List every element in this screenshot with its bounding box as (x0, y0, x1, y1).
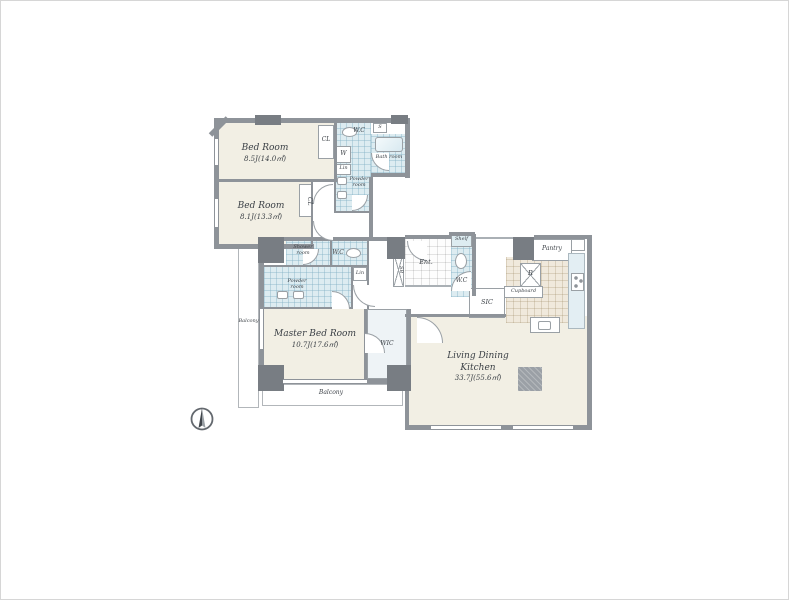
bathtub (375, 137, 403, 152)
cl1-label: CL (318, 137, 334, 144)
balcony-left-label: Balcony (236, 319, 261, 325)
window-bedroom2-left (214, 199, 219, 227)
wc-entry-label: W.C (451, 278, 472, 285)
compass-icon (189, 405, 215, 433)
entry-step-line (405, 285, 451, 287)
fridge-label: R (524, 270, 537, 277)
balcony-left (238, 248, 259, 408)
powder-mid-label: Powder room (282, 279, 312, 290)
powder-top-label: Powder room (348, 177, 370, 188)
bedroom2-label: Bed Room 8.1J(13.3㎡) (223, 201, 299, 222)
wic-label: WIC (373, 341, 401, 348)
pillar-top-wall-2 (391, 115, 408, 124)
wall-hall-top (369, 237, 389, 241)
window-master-west (259, 309, 264, 349)
ldk-label: Living Dining Kitchen 33.7J(55.6㎡) (431, 351, 525, 383)
powder-top-sink-1 (337, 177, 347, 185)
pillar-top-wall (255, 115, 281, 125)
linen-top-label: Lin (336, 166, 351, 172)
wall-bath-right (405, 118, 410, 178)
door-bedroom1 (313, 184, 333, 204)
wall-entry-top (405, 235, 451, 239)
toilet-mid-icon (346, 248, 361, 258)
wall-wic-east (407, 309, 411, 367)
pillar-shower-nw (258, 237, 284, 263)
toilet-entry-icon (455, 253, 467, 269)
wall-bedroom-divider (216, 179, 337, 182)
kitchen-counter-right (568, 253, 585, 329)
pillar-master-sw (258, 365, 284, 391)
washer-label: W (337, 151, 350, 158)
wall-wetcore-west (334, 179, 336, 213)
powder-mid-sink-2 (293, 291, 304, 299)
master-bedroom-label: Master Bed Room 10.7J(17.6㎡) (267, 329, 363, 350)
bedroom1-name: Bed Room (227, 143, 303, 155)
cupboard-label: Cupboard (505, 289, 542, 295)
kitchen-sink-icon (538, 321, 551, 330)
floor-plan-canvas: Bed Room 8.5J(14.0㎡) Bed Room 8.1J(13.3㎡… (0, 0, 789, 600)
linen-mid-label: Lin (353, 271, 367, 277)
ldk-name: Living Dining Kitchen (431, 351, 525, 374)
wall-powder-top-bottom (334, 211, 371, 213)
wall-pantry-top (534, 235, 574, 239)
pantry-label: Pantry (535, 246, 569, 253)
wall-living-west (405, 389, 409, 425)
window-bedroom1-left (214, 139, 219, 165)
bedroom1-label: Bed Room 8.5J(14.0㎡) (227, 143, 303, 164)
stove-icon (571, 273, 584, 291)
cl2-label: CL (300, 191, 312, 211)
sb-label: SB (395, 261, 403, 279)
bedroom1-size: 8.5J(14.0㎡) (227, 155, 303, 164)
shower-room-label: Shower room (289, 245, 317, 256)
shelf-label: Shelf (451, 237, 472, 243)
wall-niche-top (476, 237, 513, 239)
wc-top-label: W.C (349, 128, 369, 135)
window-living-bottom-1 (431, 425, 501, 430)
wall-right (587, 239, 592, 425)
s-closet-label: S (373, 125, 387, 131)
pillar-kitchen (513, 237, 534, 260)
bedroom2-name: Bed Room (223, 201, 299, 213)
balcony-bottom-label: Balcony (301, 390, 361, 397)
master-bedroom-name: Master Bed Room (267, 329, 363, 341)
wall-wc-entry-east (472, 234, 476, 296)
window-master-bottom (283, 379, 367, 384)
wall-top (214, 118, 410, 123)
wc-mid-label: W.C (329, 250, 347, 257)
bedroom2-size: 8.1J(13.3㎡) (223, 213, 299, 222)
bath-room-label: Bath room (374, 155, 404, 161)
pillar-entry (387, 237, 405, 259)
pillar-master-se (387, 365, 411, 391)
entry-label: Ent. (413, 259, 439, 266)
powder-mid-sink-1 (277, 291, 288, 299)
meter-box (571, 239, 585, 251)
ldk-size: 33.7J(55.6㎡) (431, 374, 525, 383)
door-master (353, 285, 375, 307)
window-living-bottom-2 (513, 425, 573, 430)
master-bedroom-size: 10.7J(17.6㎡) (267, 341, 363, 350)
powder-top-sink-2 (337, 191, 347, 199)
wall-bath-bottom (371, 173, 410, 177)
sic-label: SIC (475, 299, 499, 306)
